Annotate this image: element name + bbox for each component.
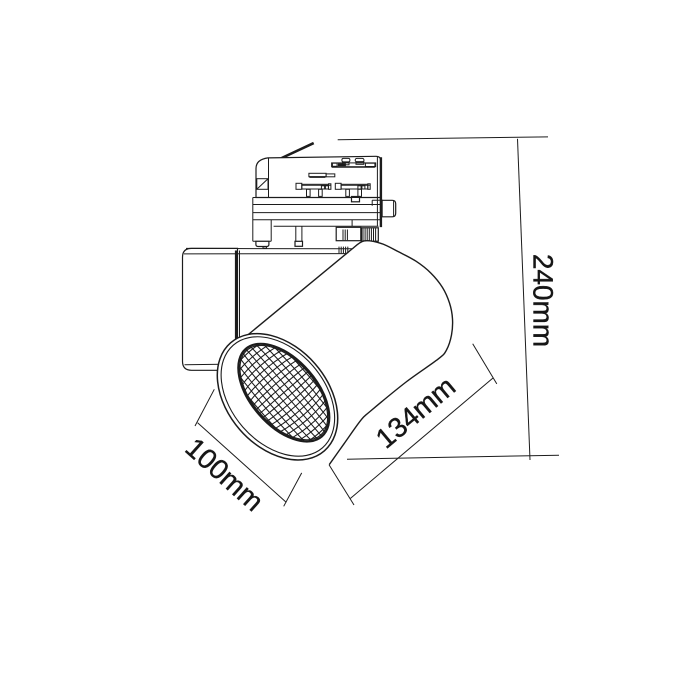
svg-text:240mm: 240mm	[528, 254, 559, 347]
